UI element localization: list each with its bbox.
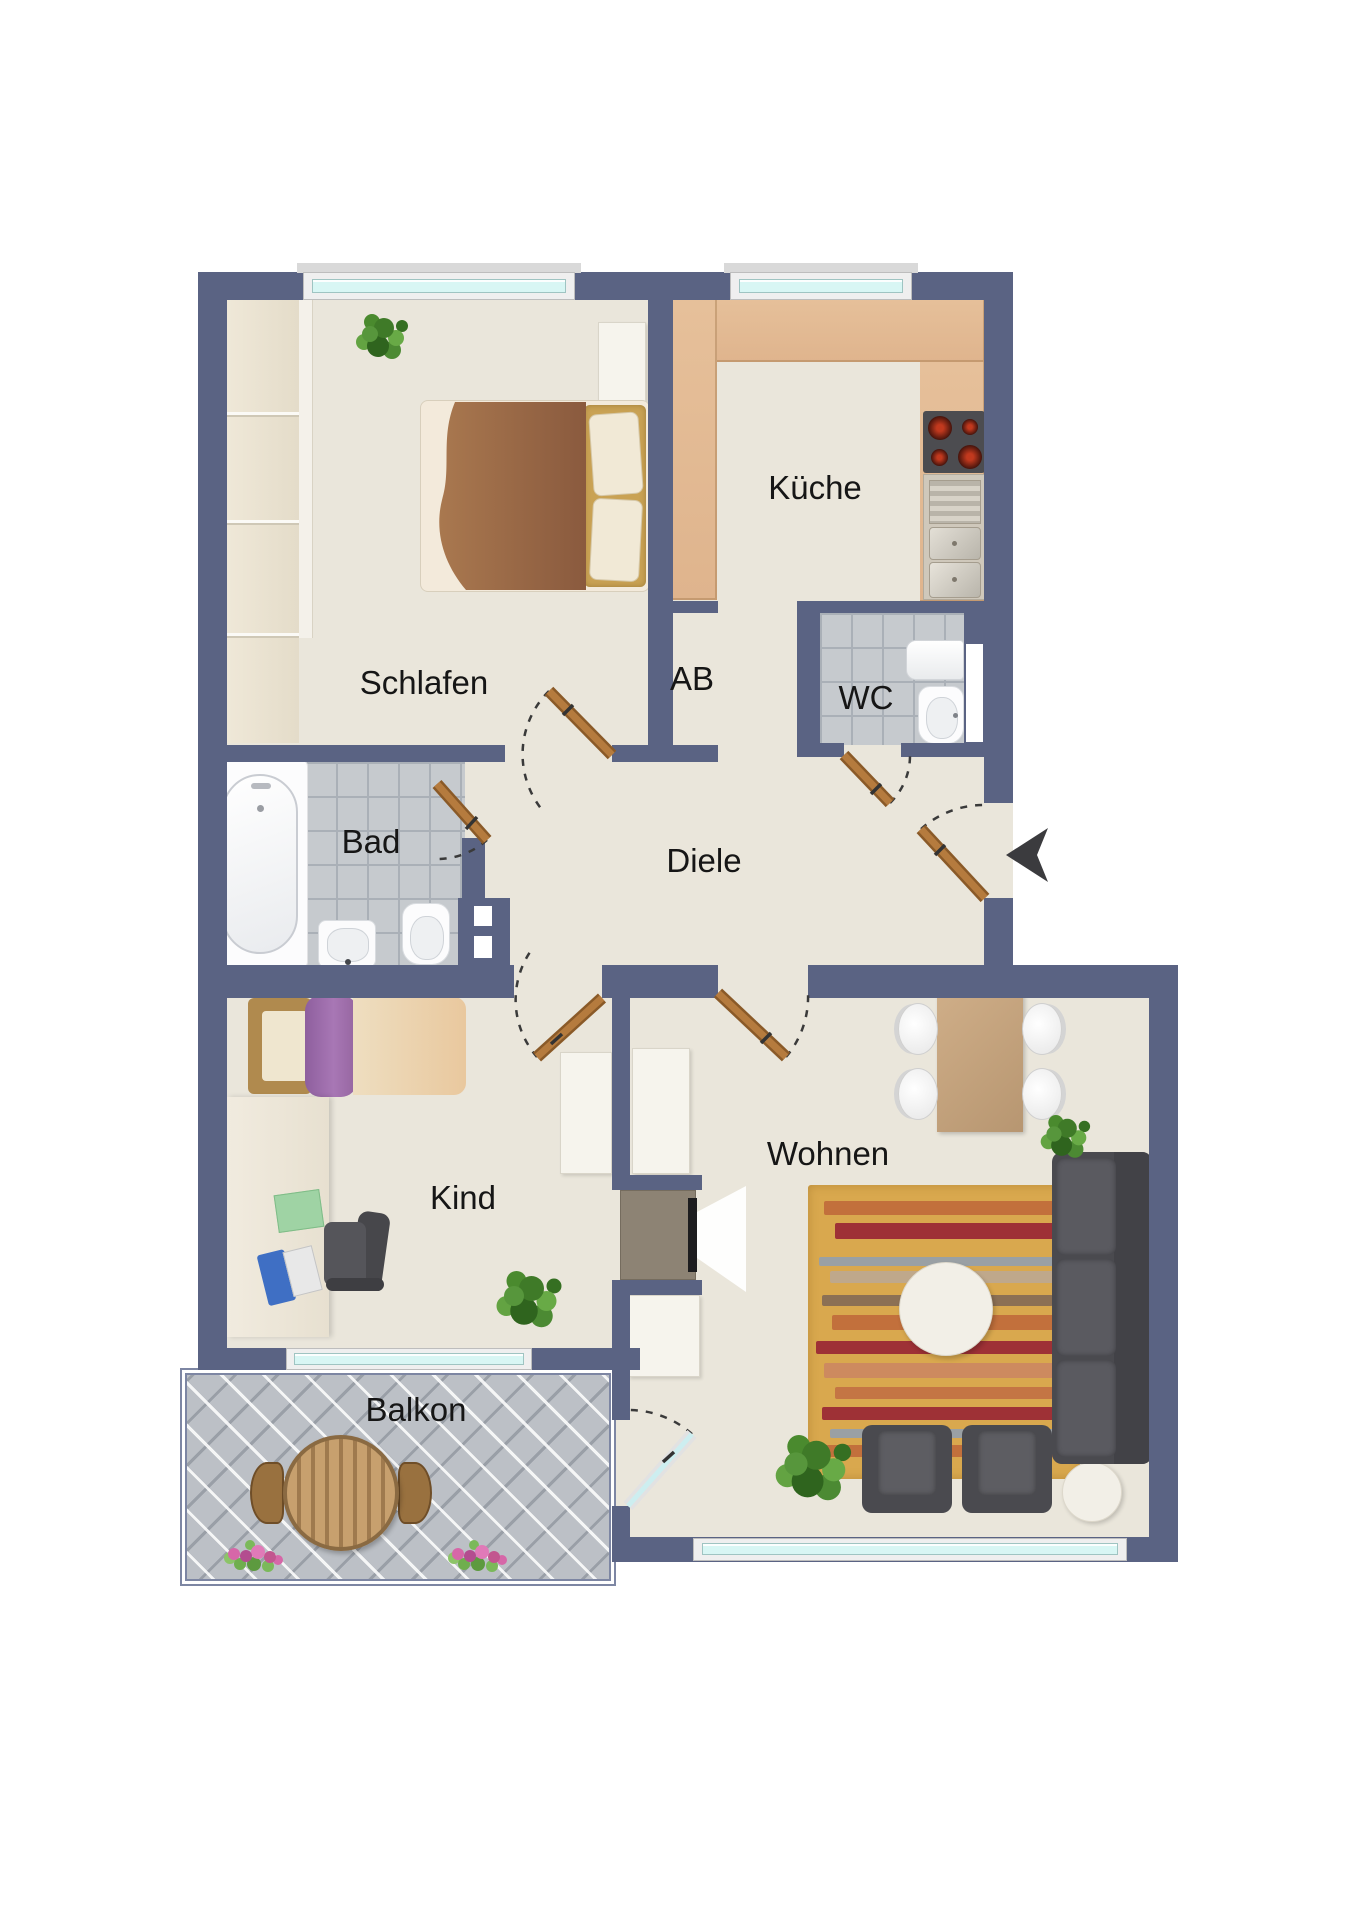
- window-glass: [702, 1543, 1118, 1555]
- wall: [901, 743, 985, 757]
- balcony-table: [283, 1435, 399, 1551]
- bidet-icon: [318, 920, 376, 968]
- window-glass: [739, 279, 903, 293]
- burner-icon: [962, 419, 978, 435]
- dining-chair: [898, 1003, 938, 1055]
- folder-icon: [274, 1189, 325, 1233]
- balcony-chair: [398, 1462, 432, 1524]
- tv-unit: [620, 1190, 696, 1280]
- room-label-bad: Bad: [342, 823, 401, 861]
- kind-headboard: [248, 998, 312, 1094]
- dining-table: [937, 990, 1023, 1132]
- wall: [198, 745, 505, 762]
- wohnen-cabinet: [632, 1048, 690, 1174]
- wall-tv-stub: [612, 1175, 702, 1190]
- balcony-chair: [250, 1462, 284, 1524]
- flowers-icon: [452, 1548, 464, 1560]
- room-label-wohnen: Wohnen: [767, 1135, 889, 1173]
- wall: [462, 838, 485, 902]
- drainboard-icon: [929, 480, 981, 524]
- kitchen-sink-icon: [923, 474, 985, 600]
- double-bed: [420, 400, 650, 592]
- window-glass: [294, 1353, 524, 1365]
- wall: [198, 272, 227, 1370]
- tub-basin: [222, 774, 298, 954]
- toilet-bowl: [926, 697, 958, 739]
- sofa: [1052, 1152, 1152, 1464]
- wall-tv-stub: [612, 1280, 702, 1295]
- wall: [673, 601, 718, 613]
- wall: [808, 965, 1178, 998]
- wall: [612, 998, 630, 1175]
- chair-seat: [324, 1222, 366, 1286]
- flowers-icon: [228, 1548, 240, 1560]
- wall: [198, 1348, 288, 1370]
- armchair: [862, 1425, 952, 1513]
- wall: [1149, 965, 1178, 1562]
- shaft-notch: [474, 906, 492, 926]
- drain-dot: [953, 713, 958, 718]
- kitchen-counter-top: [673, 298, 985, 362]
- pillow-icon: [589, 498, 643, 583]
- wall: [612, 1506, 630, 1539]
- sofa-cushion: [1056, 1158, 1116, 1255]
- washbasin-icon: [906, 640, 964, 680]
- toilet-bowl: [410, 916, 444, 960]
- faucet-icon: [251, 783, 271, 789]
- wardrobe-side-panel: [299, 298, 313, 638]
- window-glass: [312, 279, 566, 293]
- wall: [198, 965, 514, 998]
- dining-chair: [898, 1068, 938, 1120]
- sofa-cushion: [1056, 1360, 1116, 1457]
- room-label-schlafen: Schlafen: [360, 664, 488, 702]
- floor-plan: Schlafen Küche AB WC Bad Diele Kind Wohn…: [0, 0, 1357, 1920]
- room-label-ab: AB: [670, 660, 714, 698]
- office-chair: [320, 1212, 392, 1294]
- pillow-icon: [588, 411, 644, 496]
- toilet-icon: [918, 686, 964, 744]
- wall: [612, 745, 718, 762]
- sofa-cushion: [1056, 1259, 1116, 1356]
- plant-icon: [362, 326, 378, 342]
- wall: [602, 965, 718, 998]
- room-label-kueche: Küche: [768, 469, 862, 507]
- rug-stripe: [835, 1223, 1069, 1239]
- armchair: [962, 1425, 1052, 1513]
- plant-icon: [504, 1286, 524, 1306]
- kind-dresser: [560, 1052, 612, 1174]
- kind-bed: [248, 995, 468, 1097]
- dining-chair: [1022, 1003, 1062, 1055]
- wardrobe: [227, 298, 299, 743]
- armchair-seat: [978, 1431, 1036, 1495]
- drain-dot: [952, 541, 957, 546]
- kind-pillow: [262, 1011, 308, 1081]
- room-label-diele: Diele: [666, 842, 741, 880]
- room-label-wc: WC: [839, 679, 894, 717]
- room-label-kind: Kind: [430, 1179, 496, 1217]
- wardrobe-divider: [227, 633, 299, 636]
- plant-icon: [784, 1452, 807, 1475]
- rug-stripe: [822, 1407, 1061, 1420]
- wall: [530, 1348, 640, 1370]
- coffee-table: [899, 1262, 993, 1356]
- burner-icon: [958, 445, 982, 469]
- bidet-bowl: [327, 928, 369, 962]
- stove-icon: [923, 411, 985, 473]
- plant-icon: [1046, 1126, 1061, 1141]
- burner-icon: [931, 449, 948, 466]
- toilet-icon: [402, 903, 450, 965]
- shaft-notch: [474, 936, 492, 958]
- wall: [797, 601, 985, 613]
- drain-dot: [952, 577, 957, 582]
- dining-chair: [1022, 1068, 1062, 1120]
- kind-blanket: [305, 995, 357, 1097]
- wall: [984, 272, 1013, 803]
- wall-shaft-stub: [458, 898, 510, 975]
- tv-screen-icon: [688, 1198, 697, 1272]
- sofa-backrest: [1114, 1152, 1152, 1464]
- kind-mattress: [353, 997, 466, 1095]
- rug-stripe: [824, 1363, 1069, 1378]
- bedside-cabinet: [598, 322, 646, 402]
- chair-base: [326, 1278, 384, 1291]
- shaft-opening: [966, 644, 983, 742]
- side-table: [1062, 1462, 1122, 1522]
- wall: [820, 743, 844, 757]
- armchair-seat: [878, 1431, 936, 1495]
- wardrobe-divider: [227, 520, 299, 523]
- wardrobe-divider: [227, 412, 299, 415]
- room-label-balkon: Balkon: [366, 1391, 467, 1429]
- drain-dot: [257, 805, 264, 812]
- burner-icon: [928, 416, 952, 440]
- wall: [797, 604, 820, 757]
- rug-stripe: [824, 1201, 1063, 1215]
- rug-stripe: [835, 1387, 1069, 1399]
